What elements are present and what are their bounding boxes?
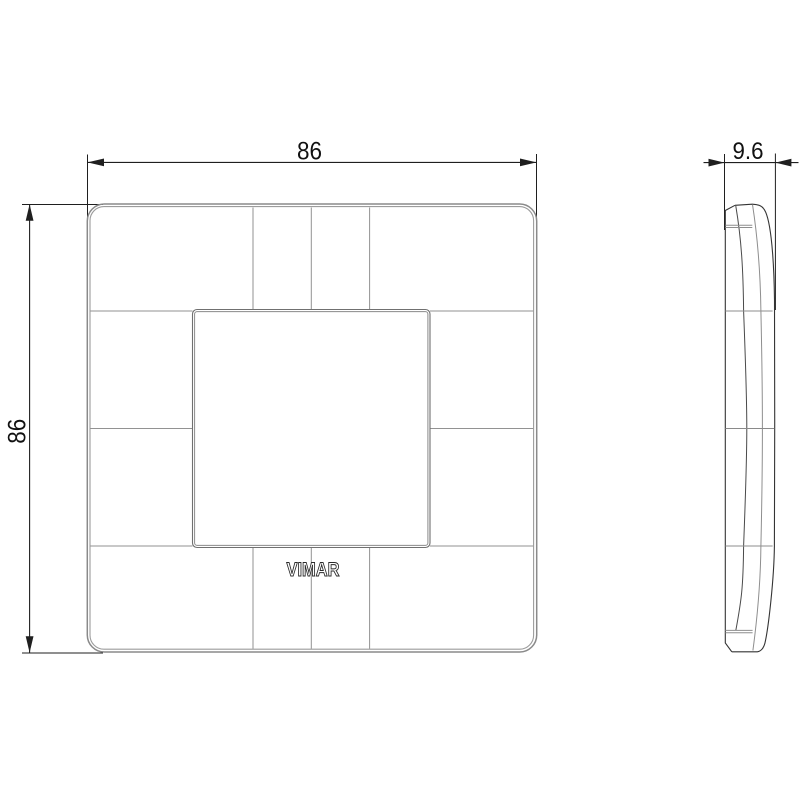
svg-text:86: 86 <box>3 419 31 444</box>
svg-text:86: 86 <box>297 138 322 166</box>
svg-text:VIMAR: VIMAR <box>287 559 340 581</box>
svg-text:9.6: 9.6 <box>733 138 764 165</box>
